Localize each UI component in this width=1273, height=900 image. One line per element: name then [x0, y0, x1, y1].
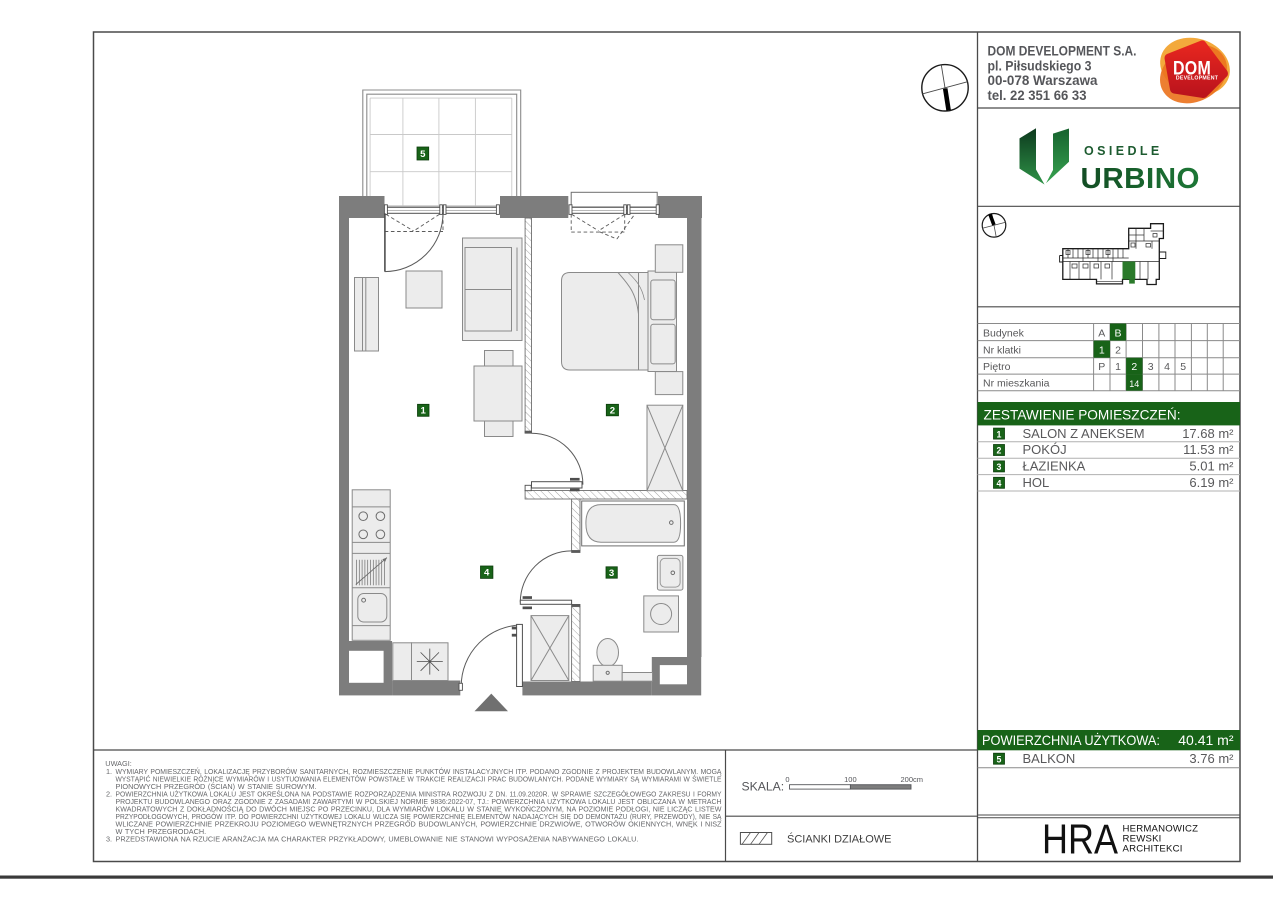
svg-text:A: A — [1098, 328, 1105, 340]
svg-text:Piętro: Piętro — [983, 361, 1011, 373]
svg-text:HOL: HOL — [1023, 475, 1050, 490]
svg-text:1: 1 — [997, 429, 1002, 439]
svg-text:3: 3 — [609, 568, 614, 579]
svg-text:14: 14 — [1129, 379, 1139, 389]
svg-text:PRZEDSTAWIONA NA RZUCIE ARANŻA: PRZEDSTAWIONA NA RZUCIE ARANŻACJA MA CHA… — [116, 835, 639, 844]
svg-text:1.: 1. — [106, 767, 112, 776]
svg-text:ŁAZIENKA: ŁAZIENKA — [1023, 459, 1086, 474]
svg-text:1: 1 — [1099, 345, 1105, 357]
svg-text:2: 2 — [1115, 345, 1121, 357]
svg-text:4: 4 — [484, 568, 490, 579]
svg-text:DEVELOPMENT: DEVELOPMENT — [1176, 76, 1219, 82]
svg-text:100: 100 — [844, 775, 857, 784]
svg-text:URBINO: URBINO — [1081, 163, 1201, 195]
svg-text:5: 5 — [997, 754, 1002, 764]
svg-text:2: 2 — [610, 406, 615, 417]
svg-text:4: 4 — [997, 479, 1002, 489]
svg-text:4: 4 — [1164, 361, 1170, 373]
svg-text:SALON Z ANEKSEM: SALON Z ANEKSEM — [1023, 426, 1145, 441]
svg-text:11.53 m²: 11.53 m² — [1183, 442, 1234, 457]
svg-text:0: 0 — [785, 775, 789, 784]
svg-text:3: 3 — [997, 462, 1002, 472]
svg-text:Nr mieszkania: Nr mieszkania — [983, 378, 1050, 390]
svg-text:POKÓJ: POKÓJ — [1023, 442, 1067, 457]
svg-text:POWIERZCHNIA UŻYTKOWA:: POWIERZCHNIA UŻYTKOWA: — [982, 731, 1160, 748]
svg-text:BALKON: BALKON — [1023, 751, 1076, 766]
svg-text:17.68 m²: 17.68 m² — [1182, 426, 1234, 441]
svg-text:ARCHITEKCI: ARCHITEKCI — [1123, 843, 1183, 854]
svg-text:DOM DEVELOPMENT S.A.: DOM DEVELOPMENT S.A. — [988, 43, 1137, 59]
svg-text:40.41 m²: 40.41 m² — [1178, 732, 1234, 748]
svg-text:1: 1 — [421, 406, 427, 417]
svg-text:B: B — [1114, 328, 1121, 340]
svg-text:6.19 m²: 6.19 m² — [1189, 475, 1234, 490]
svg-text:HRA: HRA — [1042, 816, 1118, 863]
svg-text:3.: 3. — [106, 835, 112, 844]
svg-text:200cm: 200cm — [901, 775, 924, 784]
svg-text:ZESTAWIENIE POMIESZCZEŃ:: ZESTAWIENIE POMIESZCZEŃ: — [984, 407, 1181, 423]
svg-text:ŚCIANKI DZIAŁOWE: ŚCIANKI DZIAŁOWE — [787, 833, 892, 846]
svg-text:3: 3 — [1148, 361, 1154, 373]
svg-text:pl. Piłsudskiego 3: pl. Piłsudskiego 3 — [988, 57, 1092, 73]
svg-text:SKALA:: SKALA: — [742, 780, 785, 794]
svg-text:P: P — [1098, 361, 1105, 373]
svg-text:2: 2 — [1131, 361, 1137, 373]
svg-text:2: 2 — [997, 446, 1002, 456]
svg-text:WLICZANE POWIERZCHNIE PRZEKRO: WLICZANE POWIERZCHNIE PRZEKROJU POZIOMEG… — [116, 820, 723, 829]
svg-text:tel. 22 351 66 33: tel. 22 351 66 33 — [988, 87, 1087, 103]
svg-text:Budynek: Budynek — [983, 328, 1025, 340]
svg-text:5: 5 — [1180, 361, 1186, 373]
svg-text:1: 1 — [1115, 361, 1121, 373]
svg-text:OSIEDLE: OSIEDLE — [1084, 144, 1163, 158]
svg-text:5.01 m²: 5.01 m² — [1189, 459, 1234, 474]
svg-text:5: 5 — [420, 149, 426, 160]
svg-text:2.: 2. — [106, 790, 112, 799]
svg-text:3.76 m²: 3.76 m² — [1189, 751, 1234, 766]
svg-text:00-078 Warszawa: 00-078 Warszawa — [988, 72, 1098, 88]
svg-text:Nr klatki: Nr klatki — [983, 345, 1021, 357]
